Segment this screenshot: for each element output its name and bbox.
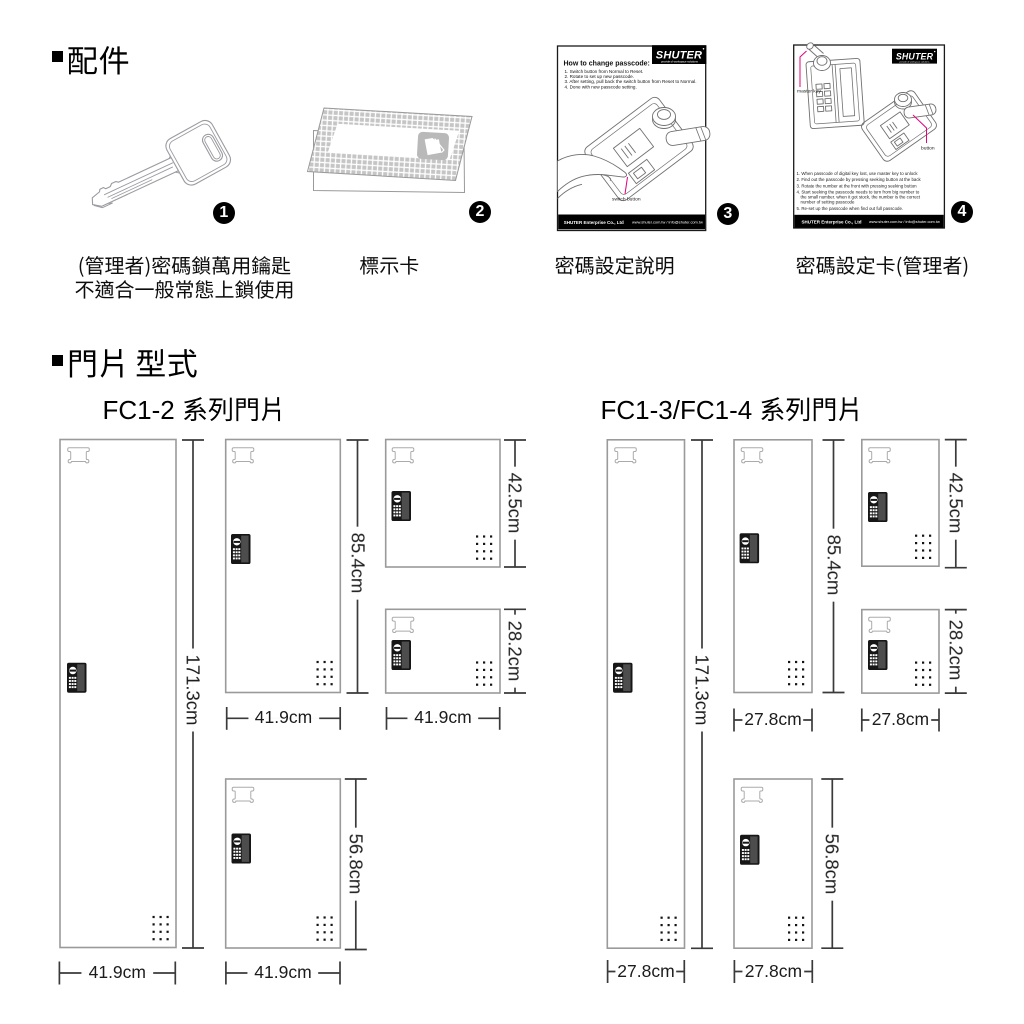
svg-text:button: button [921, 145, 935, 151]
svg-text:SHUTER: SHUTER [896, 51, 934, 61]
svg-text:2. Find out the passcode by pr: 2. Find out the passcode by pressing see… [797, 177, 922, 182]
svg-text:1. When passcode of digital ke: 1. When passcode of digital key lost, us… [797, 171, 919, 176]
svg-text:4. Done with new passcode sett: 4. Done with new passcode setting. [565, 84, 637, 89]
svg-text:switch button: switch button [612, 197, 641, 203]
svg-text:How to change passcode:: How to change passcode: [564, 61, 650, 68]
svg-text:number of setting passcode: number of setting passcode [801, 200, 855, 205]
svg-text:www.shuter.com.tw / info@shu: www.shuter.com.tw / info@shuter.com.tw [632, 220, 703, 225]
svg-text:provide of workspace solutions: provide of workspace solutions [900, 61, 931, 64]
svg-text:www.shuter.com.tw / info@shu: www.shuter.com.tw / info@shuter.com.tw [869, 219, 940, 224]
svg-text:provide of workspace solutions: provide of workspace solutions [661, 59, 698, 63]
svg-text:3. Rotate the number at the fr: 3. Rotate the number at the front with p… [797, 183, 918, 188]
svg-text:SHUTER Enterprise Co., Ltd: SHUTER Enterprise Co., Ltd [564, 220, 624, 225]
svg-text:master key: master key [797, 89, 821, 95]
svg-text:SHUTER Enterprise Co., Ltd: SHUTER Enterprise Co., Ltd [802, 219, 862, 224]
svg-text:5. Re-set up the passcode when: 5. Re-set up the passcode when find out … [797, 206, 904, 211]
